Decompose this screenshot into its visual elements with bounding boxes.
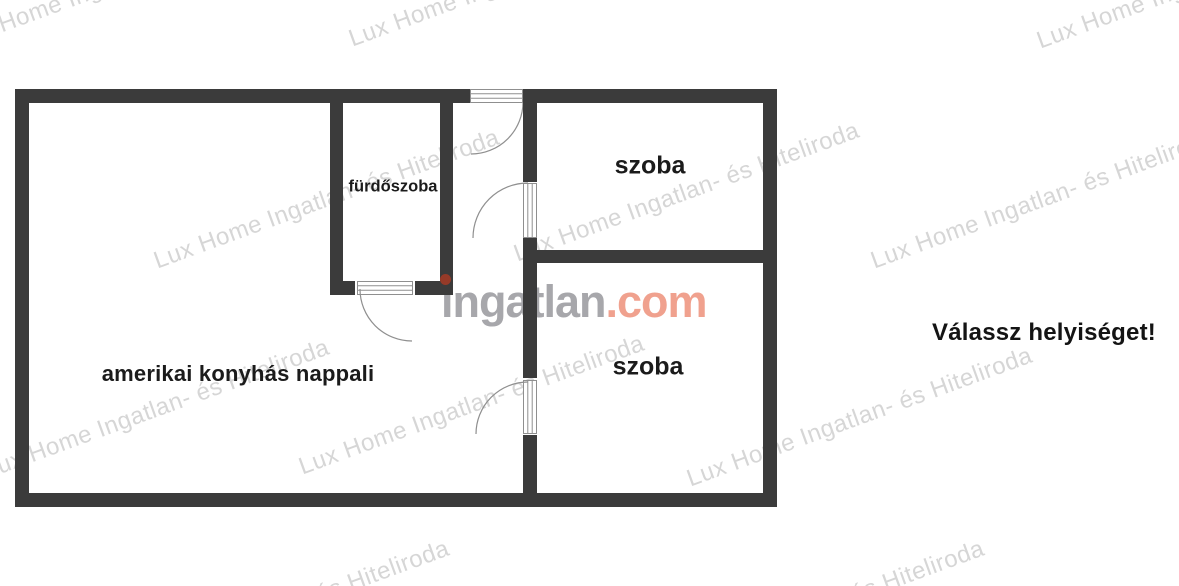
bathroom-door-arc: [360, 289, 412, 341]
entrance-door-arc: [471, 102, 523, 154]
wall-divider-bottom: [523, 435, 537, 493]
wall-bathroom-bottom: [330, 281, 355, 295]
bottom-room-door-arc: [476, 382, 528, 434]
wall-right: [763, 89, 777, 507]
wall-top-right: [523, 89, 777, 103]
wall-top-left: [15, 89, 470, 103]
wall-bathroom-right: [440, 103, 453, 295]
wall-left: [15, 89, 29, 507]
wall-bathroom-left: [330, 103, 343, 295]
entrance-door: [471, 90, 524, 155]
wall-divider-top: [523, 103, 537, 182]
choose-room-prompt: Válassz helyiséget!: [932, 319, 1156, 347]
floorplan-canvas: Lux Home Ingatlan- és Hiteliroda Lux Hom…: [0, 0, 1179, 586]
wall-bottom: [15, 493, 777, 507]
top-room-door: [473, 183, 537, 238]
top-room-door-arc: [473, 183, 528, 238]
marker-dot: [440, 274, 451, 285]
wall-between-rooms: [537, 250, 763, 263]
bathroom-door: [358, 282, 413, 342]
wall-divider-middle: [523, 238, 537, 378]
bottom-room-door: [476, 381, 537, 435]
